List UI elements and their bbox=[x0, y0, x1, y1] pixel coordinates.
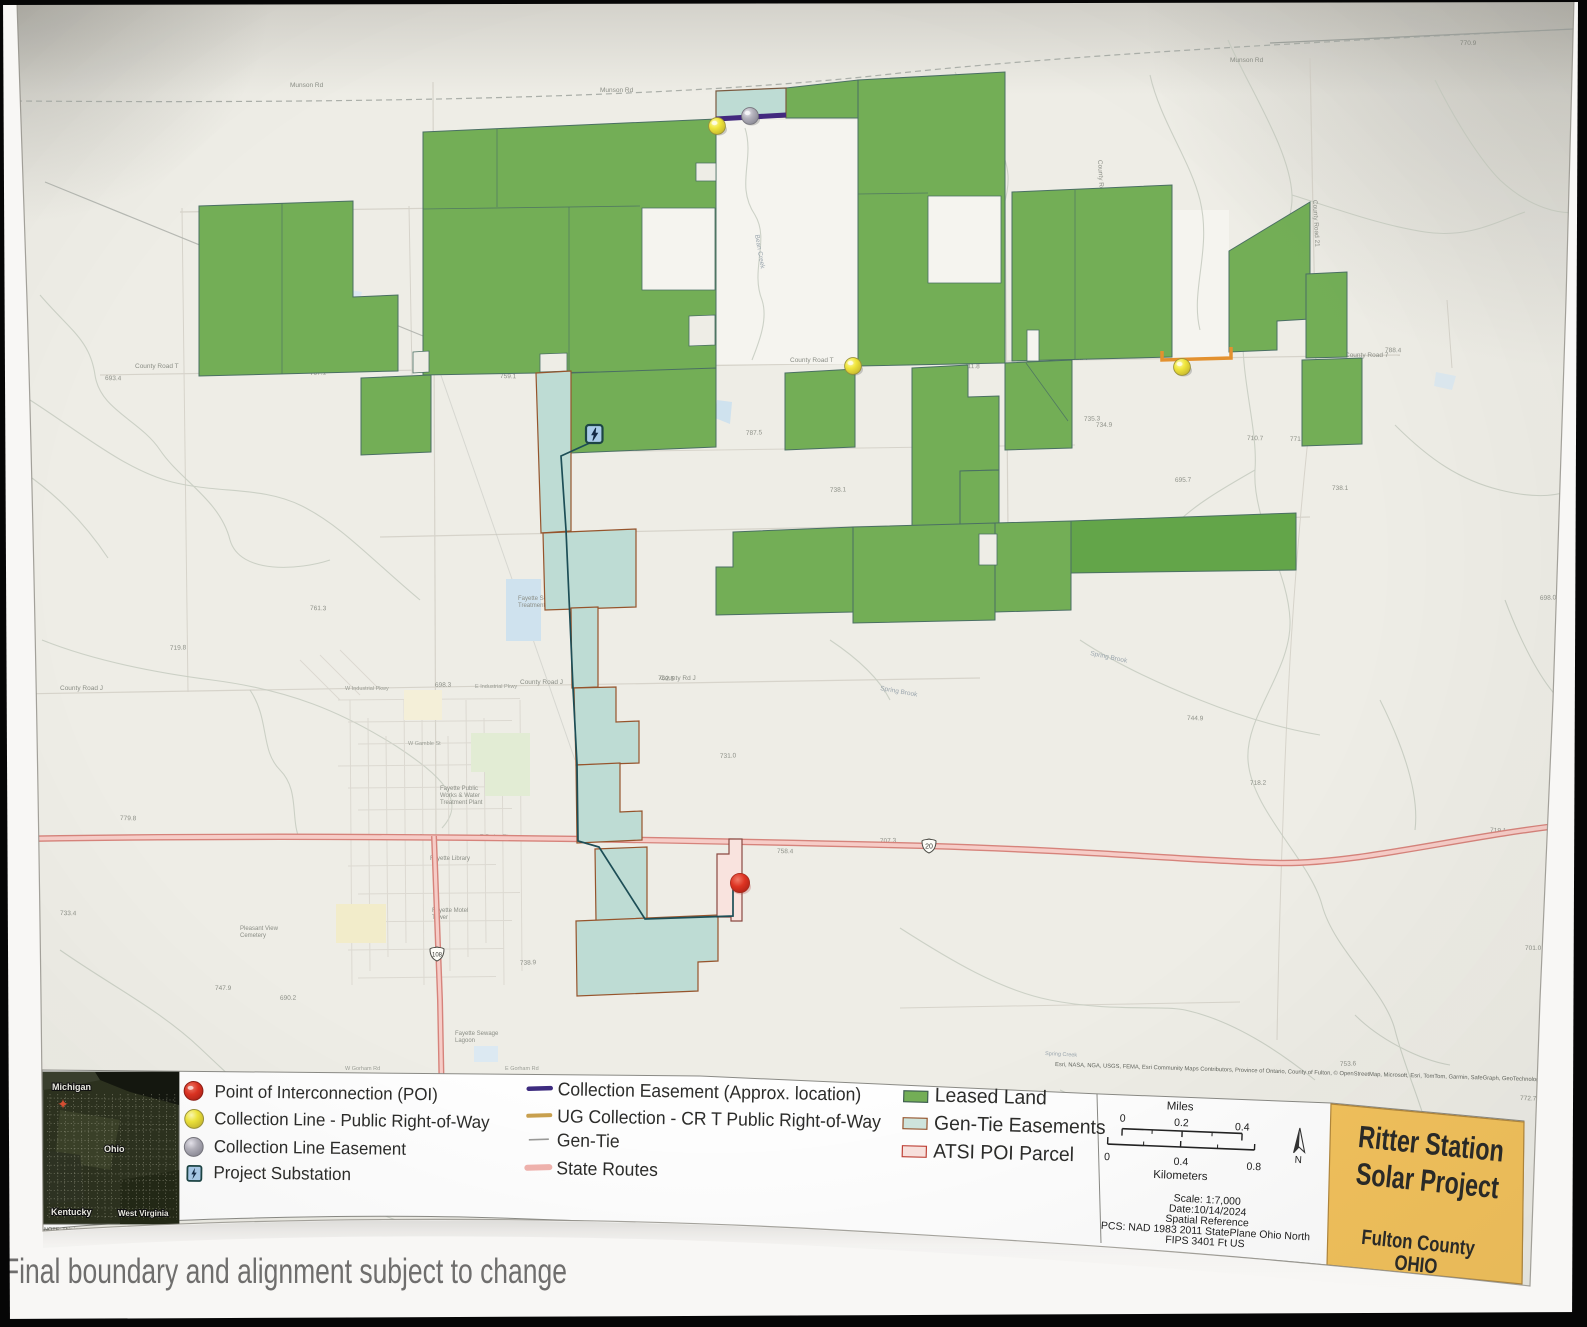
svg-text:Final boundary and alignment s: Final boundary and alignment subject to … bbox=[3, 1251, 567, 1290]
